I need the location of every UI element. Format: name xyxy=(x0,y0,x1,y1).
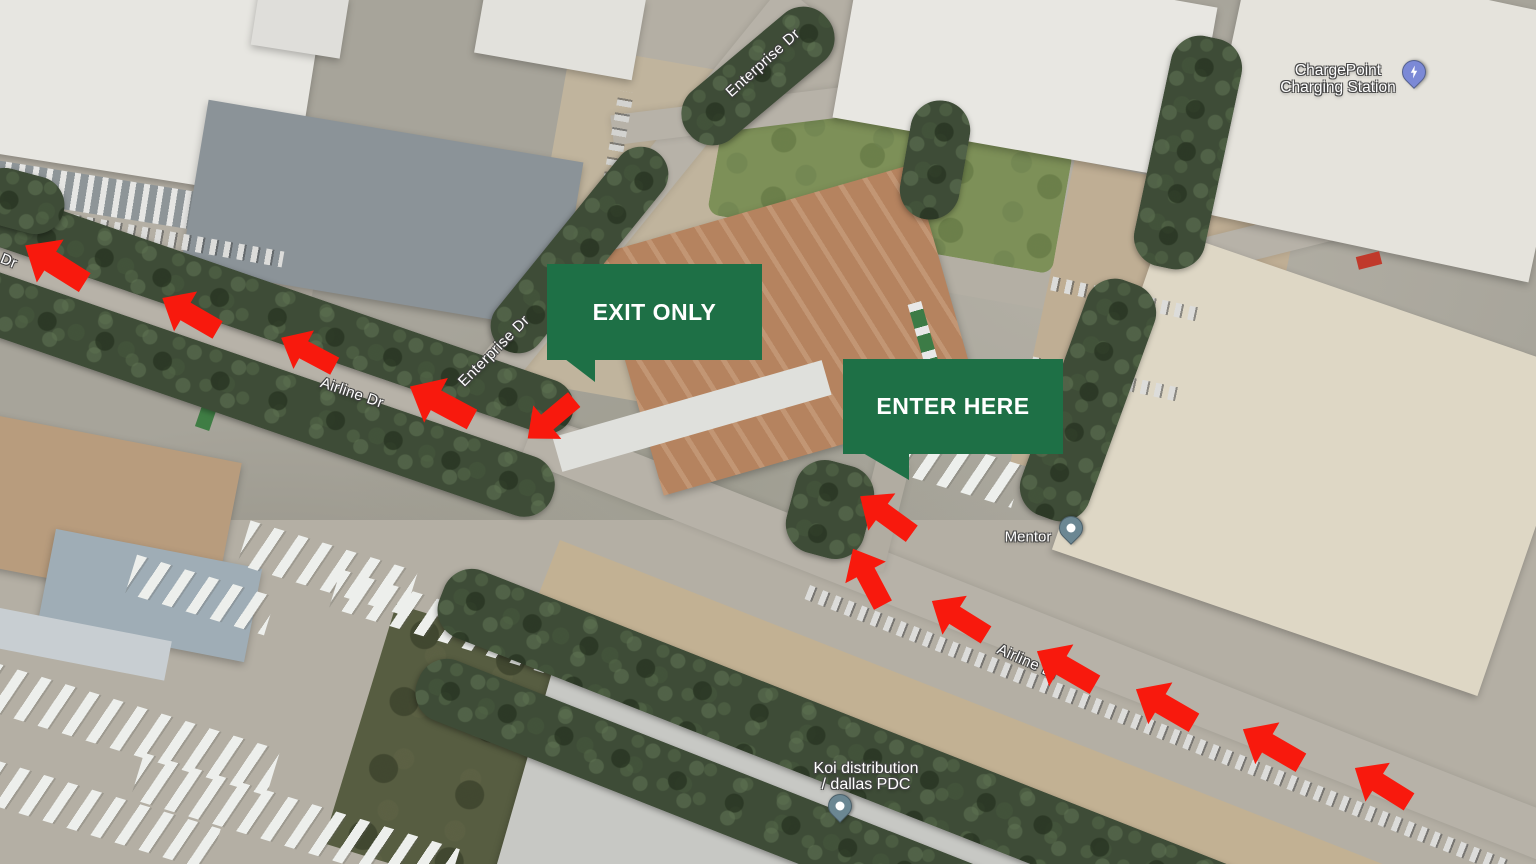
exit-only-label: EXIT ONLY xyxy=(593,299,717,326)
route-arrow-11 xyxy=(1231,708,1313,783)
route-arrow-10 xyxy=(1124,668,1206,743)
route-arrow-9 xyxy=(1025,630,1107,705)
route-arrow-6 xyxy=(847,478,926,553)
enter-here-label: ENTER HERE xyxy=(876,393,1029,420)
route-arrow-4 xyxy=(398,364,484,442)
route-arrow-1 xyxy=(12,224,99,304)
route-arrow-12 xyxy=(1343,749,1422,822)
route-arrow-3 xyxy=(271,318,345,385)
route-arrow-7 xyxy=(833,538,904,616)
route-arrow-8 xyxy=(920,582,999,655)
route-arrows-layer xyxy=(0,0,1536,864)
exit-only-callout: EXIT ONLY xyxy=(547,264,762,360)
satellite-map: Enterprise Dr Enterprise Dr Airline Dr A… xyxy=(0,0,1536,864)
route-arrow-2 xyxy=(151,278,229,350)
route-arrow-5 xyxy=(514,383,589,456)
enter-here-callout: ENTER HERE xyxy=(843,359,1063,454)
